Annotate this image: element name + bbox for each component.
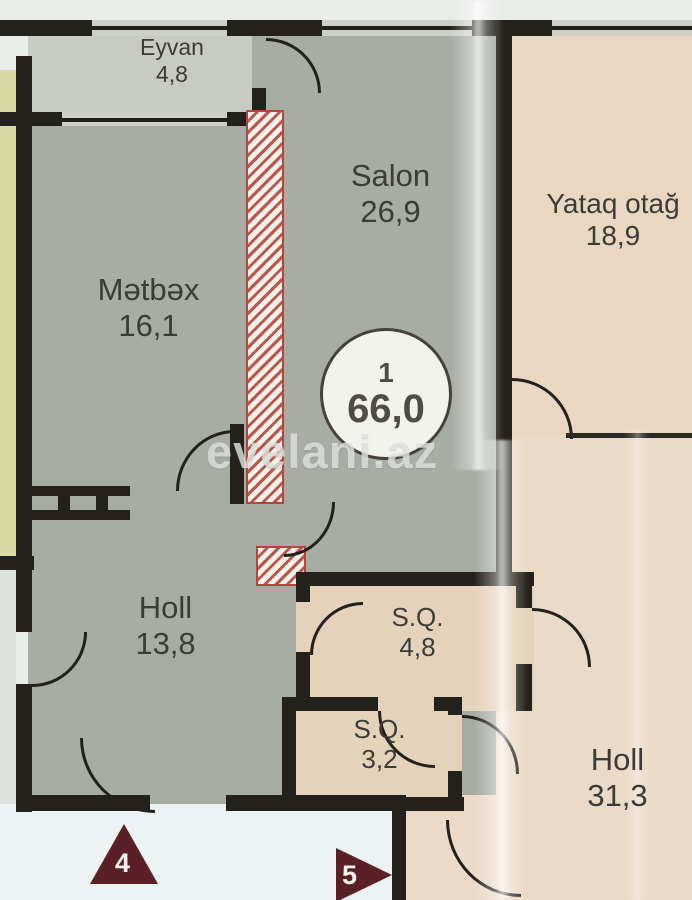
- room-name: Mətbəx: [46, 272, 251, 308]
- wall: [282, 797, 464, 811]
- room-area: 26,9: [288, 194, 493, 230]
- room-name: Holl: [63, 590, 268, 626]
- room-name: Holl: [540, 742, 692, 778]
- room-label-eyvan: Eyvan 4,8: [72, 34, 272, 87]
- room-label-sq1: S.Q. 4,8: [330, 602, 505, 662]
- wall: [296, 572, 534, 586]
- wall: [496, 20, 512, 576]
- room-area: 16,1: [46, 308, 251, 344]
- wall: [16, 684, 32, 812]
- room-name: S.Q.: [292, 714, 467, 744]
- room-area: 18,9: [528, 220, 692, 252]
- window: [62, 112, 227, 126]
- marker-number: 4: [115, 848, 130, 879]
- room-name: Yataq otağ: [528, 188, 692, 220]
- floor-marker-4: 4: [90, 824, 158, 884]
- room-area: 31,3: [540, 778, 692, 814]
- wall: [448, 697, 462, 715]
- room-area: 4,8: [72, 61, 272, 88]
- room-area: 4,8: [330, 632, 505, 662]
- room-area: 3,2: [292, 744, 467, 774]
- room-label-yataq: Yataq otağ 18,9: [528, 188, 692, 253]
- photo-margin-bottom: [0, 804, 392, 900]
- photo-edge-left: [0, 562, 16, 812]
- wall: [32, 486, 130, 496]
- room-label-sq2: S.Q. 3,2: [292, 714, 467, 774]
- unit-number: 1: [378, 358, 394, 387]
- window: [322, 20, 472, 36]
- floor-plan: Eyvan 4,8 Salon 26,9 Mətbəx 16,1 Yataq o…: [0, 0, 692, 900]
- room-label-metbex: Mətbəx 16,1: [46, 272, 251, 344]
- room-label-salon: Salon 26,9: [288, 158, 493, 230]
- marker-number: 5: [342, 860, 357, 891]
- wall: [448, 771, 462, 811]
- room-area: 13,8: [63, 626, 268, 662]
- window: [552, 20, 692, 36]
- wall: [16, 556, 32, 632]
- wall: [16, 56, 32, 568]
- wall: [32, 510, 130, 520]
- room-label-holl1: Holl 13,8: [63, 590, 268, 662]
- room-name: Salon: [288, 158, 493, 194]
- wall: [516, 586, 532, 608]
- watermark: evelani.az: [206, 424, 438, 479]
- wall: [566, 433, 692, 438]
- room-name: Eyvan: [72, 34, 272, 61]
- photo-margin-top: [0, 0, 692, 20]
- wall: [96, 486, 108, 520]
- room-label-holl2: Holl 31,3: [540, 742, 692, 814]
- wall: [282, 697, 378, 711]
- room-name: S.Q.: [330, 602, 505, 632]
- wall: [516, 664, 532, 711]
- wall: [58, 486, 70, 520]
- floor-marker-5: 5: [336, 848, 392, 900]
- wall: [296, 586, 310, 602]
